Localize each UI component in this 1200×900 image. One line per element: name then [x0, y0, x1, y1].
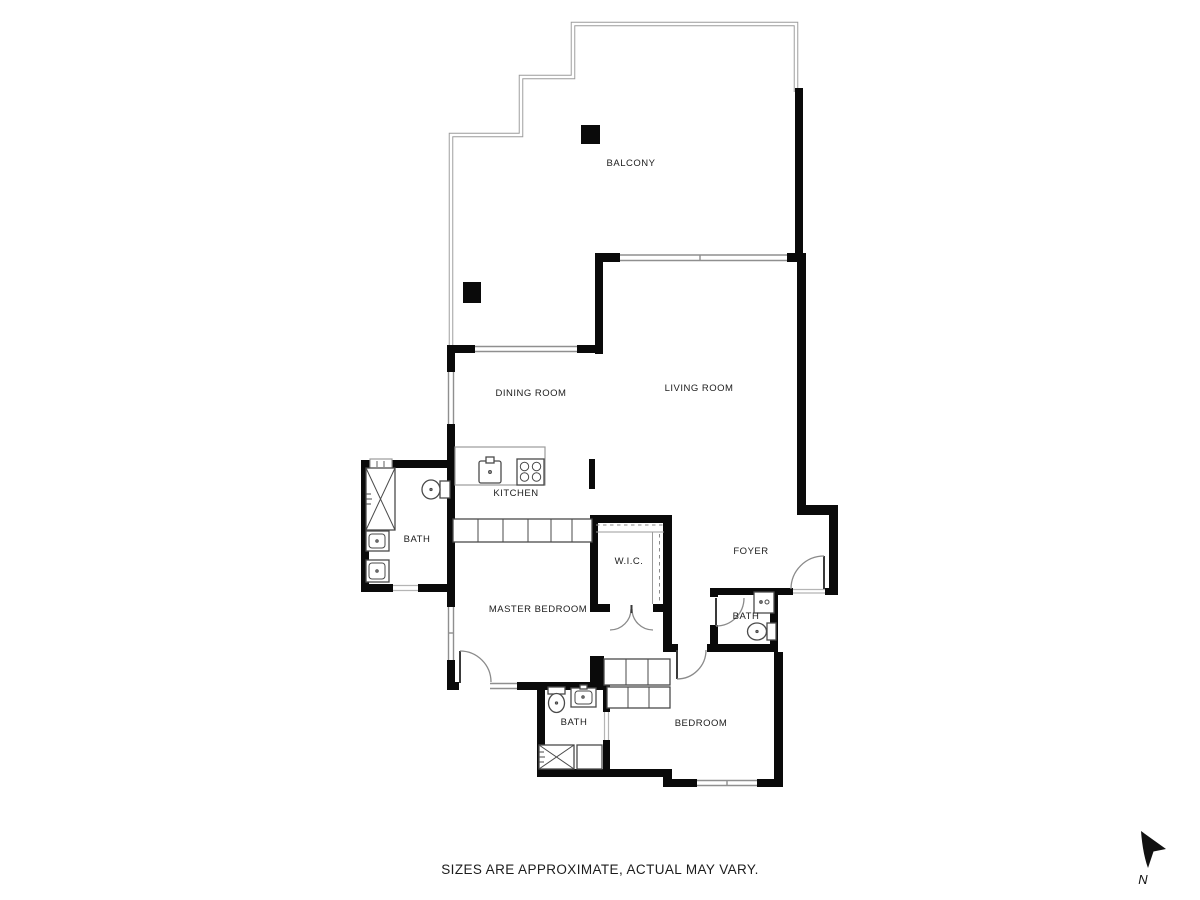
- closet-row: [607, 687, 670, 708]
- stove-icon: [517, 459, 544, 485]
- bedroom-door: [677, 650, 706, 679]
- north-arrow-icon: [1141, 831, 1166, 868]
- room-label-master-bath: BATH: [404, 534, 431, 545]
- compass: N: [1138, 831, 1166, 887]
- toilet-icon: [548, 687, 565, 713]
- room-label-living-room: LIVING ROOM: [665, 383, 734, 394]
- room-label-balcony: BALCONY: [607, 158, 656, 169]
- toilet-icon: [748, 623, 777, 640]
- opening-master-bath: [393, 584, 418, 592]
- shower-tray: [577, 745, 602, 769]
- floor-plan-page: BALCONY DINING ROOM LIVING ROOM KITCHEN …: [0, 0, 1200, 900]
- master-closets: [604, 659, 670, 708]
- window-master-bottom: [490, 682, 517, 690]
- walls: [361, 88, 838, 787]
- master-bedroom-door: [460, 651, 491, 683]
- entry-door: [791, 556, 824, 589]
- shower-icon: [366, 468, 395, 530]
- window-living-top: [620, 253, 787, 262]
- sink-icon: [754, 592, 774, 613]
- opening-bedroom: [678, 644, 707, 652]
- disclaimer-text: SIZES ARE APPROXIMATE, ACTUAL MAY VARY.: [441, 862, 758, 877]
- column-icon: [463, 282, 481, 303]
- room-label-dining-room: DINING ROOM: [496, 388, 567, 399]
- room-label-second-bath: BATH: [561, 717, 588, 728]
- floor-plan: BALCONY DINING ROOM LIVING ROOM KITCHEN …: [0, 0, 1200, 900]
- columns: [463, 125, 600, 303]
- north-label: N: [1138, 872, 1148, 887]
- room-label-guest-bath: BATH: [733, 611, 760, 622]
- window-master-left: [447, 607, 455, 660]
- shower-icon: [539, 745, 574, 769]
- room-label-master-bedroom: MASTER BEDROOM: [489, 604, 587, 615]
- sink-icon: [571, 685, 596, 707]
- window-dining-top: [475, 345, 577, 353]
- closet-row: [604, 659, 670, 685]
- room-label-bedroom: BEDROOM: [675, 718, 728, 729]
- kitchen-sink-icon: [479, 457, 501, 483]
- opening-entry: [793, 588, 825, 595]
- kitchen-cabinets: [453, 519, 592, 542]
- balcony-outline: [451, 24, 796, 349]
- room-label-kitchen: KITCHEN: [493, 488, 538, 499]
- master-bath-fixtures: [366, 468, 450, 582]
- column-icon: [581, 125, 600, 144]
- opening-second-bath-pocket: [603, 712, 610, 740]
- window-dining-left: [447, 372, 455, 424]
- window-bedroom-bottom: [697, 779, 757, 787]
- room-label-wic: W.I.C.: [615, 556, 644, 567]
- toilet-icon: [422, 480, 450, 499]
- opening-master-door: [459, 682, 490, 690]
- vanity-sink-icon: [366, 560, 389, 582]
- room-label-foyer: FOYER: [733, 546, 768, 557]
- vanity-sink-icon: [366, 531, 389, 551]
